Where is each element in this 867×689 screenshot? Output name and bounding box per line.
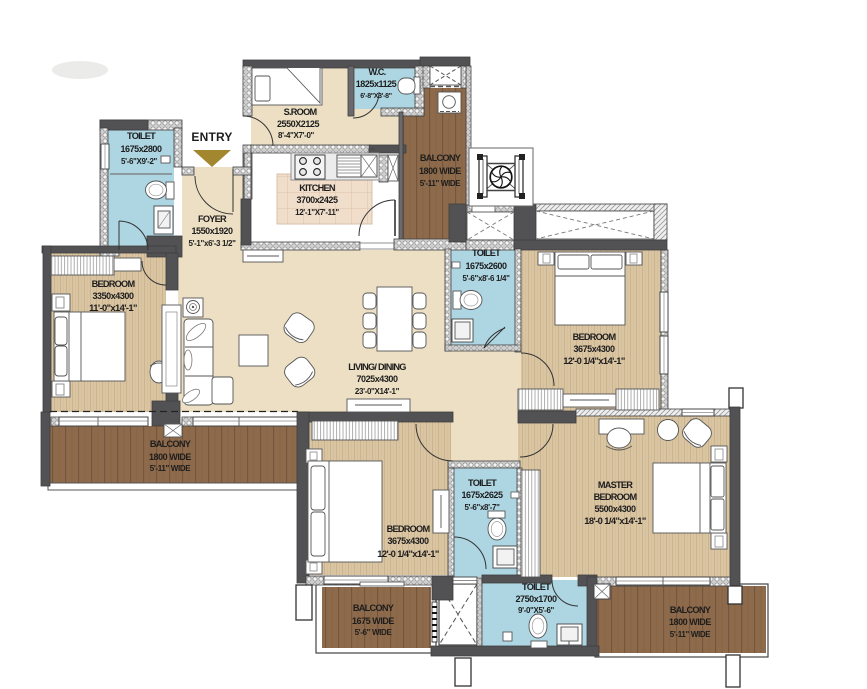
svg-text:BALCONY: BALCONY — [150, 439, 191, 449]
svg-text:1675 WIDE: 1675 WIDE — [352, 616, 394, 626]
svg-text:ENTRY: ENTRY — [191, 130, 232, 144]
svg-text:1550x1920: 1550x1920 — [192, 226, 233, 236]
svg-text:12'-1"X7'-11": 12'-1"X7'-11" — [295, 208, 339, 217]
svg-text:BEDROOM: BEDROOM — [573, 332, 617, 342]
svg-text:5'-11" WIDE: 5'-11" WIDE — [420, 179, 462, 188]
svg-text:1675x2600: 1675x2600 — [466, 261, 507, 271]
svg-text:2750x1700: 2750x1700 — [516, 594, 557, 604]
svg-text:W.C.: W.C. — [369, 67, 386, 77]
svg-text:5'-1"x6'-3 1/2": 5'-1"x6'-3 1/2" — [188, 239, 236, 248]
svg-text:KITCHEN: KITCHEN — [299, 183, 336, 193]
svg-text:FOYER: FOYER — [198, 214, 227, 224]
svg-text:5'-11" WIDE: 5'-11" WIDE — [150, 464, 192, 473]
svg-text:S.ROOM: S.ROOM — [284, 107, 318, 117]
svg-text:7025x4300: 7025x4300 — [357, 374, 398, 384]
svg-text:BEDROOM: BEDROOM — [92, 279, 136, 289]
svg-text:3350x4300: 3350x4300 — [93, 291, 134, 301]
svg-text:12'-0 1/4"x14'-1": 12'-0 1/4"x14'-1" — [377, 548, 439, 559]
svg-text:11'-0"x14'-1": 11'-0"x14'-1" — [89, 302, 137, 313]
svg-text:12'-0 1/4"x14'-1": 12'-0 1/4"x14'-1" — [563, 355, 625, 366]
svg-text:3675x4300: 3675x4300 — [388, 536, 429, 546]
svg-text:3700x2425: 3700x2425 — [297, 195, 338, 205]
svg-text:8'-4"X7'-0": 8'-4"X7'-0" — [278, 131, 315, 140]
svg-text:23'-0"X14'-1": 23'-0"X14'-1" — [355, 387, 400, 396]
svg-text:BALCONY: BALCONY — [670, 605, 711, 615]
svg-text:TOILET: TOILET — [127, 131, 156, 141]
svg-text:5'-6" WIDE: 5'-6" WIDE — [355, 628, 393, 637]
svg-text:1675x2800: 1675x2800 — [121, 144, 162, 154]
svg-text:BEDROOM: BEDROOM — [594, 492, 638, 502]
svg-text:5'-6"x8'-7": 5'-6"x8'-7" — [464, 503, 500, 512]
svg-text:BALCONY: BALCONY — [353, 603, 394, 613]
svg-text:9'-0"X5'-6": 9'-0"X5'-6" — [518, 606, 555, 615]
svg-text:1800 WIDE: 1800 WIDE — [419, 166, 461, 176]
svg-text:5'-6"x8'-6 1/4": 5'-6"x8'-6 1/4" — [462, 274, 510, 283]
svg-text:6'-8"X3'-8": 6'-8"X3'-8" — [360, 93, 392, 100]
svg-text:TOILET: TOILET — [522, 582, 551, 592]
svg-text:TOILET: TOILET — [468, 478, 497, 488]
svg-text:1825x1125: 1825x1125 — [356, 79, 397, 89]
svg-text:BALCONY: BALCONY — [420, 153, 461, 163]
svg-text:MASTER: MASTER — [598, 480, 633, 490]
svg-text:1800 WIDE: 1800 WIDE — [669, 617, 711, 627]
svg-text:3675x4300: 3675x4300 — [574, 344, 615, 354]
svg-text:LIVING/ DINING: LIVING/ DINING — [348, 362, 406, 372]
svg-text:5'-11" WIDE: 5'-11" WIDE — [670, 630, 712, 639]
svg-text:2550X2125: 2550X2125 — [277, 119, 319, 129]
svg-text:5'-6"X9'-2": 5'-6"X9'-2" — [121, 157, 158, 166]
svg-text:TOILET: TOILET — [472, 248, 501, 258]
svg-text:18'-0 1/4"x14'-1": 18'-0 1/4"x14'-1" — [584, 515, 646, 526]
svg-text:5500x4300: 5500x4300 — [595, 504, 636, 514]
svg-text:BEDROOM: BEDROOM — [387, 524, 431, 534]
svg-text:1800 WIDE: 1800 WIDE — [149, 452, 191, 462]
svg-text:1675x2625: 1675x2625 — [462, 490, 503, 500]
